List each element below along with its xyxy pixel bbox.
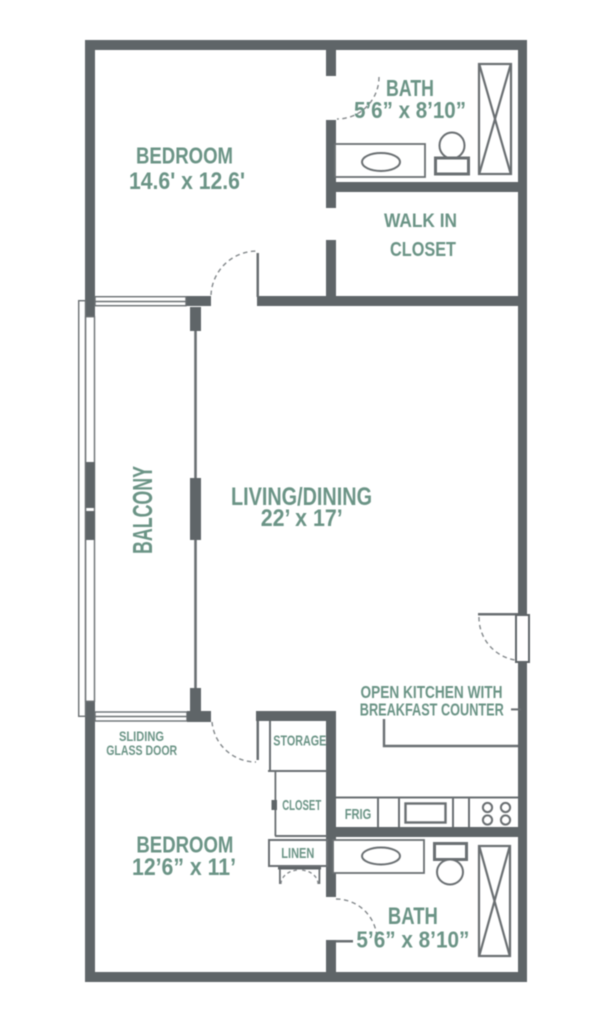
svg-text:BREAKFAST COUNTER: BREAKFAST COUNTER (360, 700, 504, 720)
svg-text:12’6” x 11’: 12’6” x 11’ (132, 854, 236, 881)
svg-text:GLASS DOOR: GLASS DOOR (106, 742, 177, 758)
svg-text:14.6' x 12.6': 14.6' x 12.6' (129, 168, 245, 195)
svg-text:STORAGE: STORAGE (273, 733, 326, 750)
svg-text:LINEN: LINEN (281, 845, 314, 862)
svg-text:CLOSET: CLOSET (390, 239, 456, 261)
svg-text:BEDROOM: BEDROOM (136, 143, 233, 169)
svg-text:FRIG: FRIG (345, 806, 372, 823)
svg-text:WALK IN: WALK IN (384, 210, 457, 232)
svg-text:5’6” x 8’10”: 5’6” x 8’10” (354, 97, 466, 123)
svg-text:22’ x 17’: 22’ x 17’ (261, 505, 343, 532)
svg-text:5’6” x 8’10”: 5’6” x 8’10” (356, 927, 469, 953)
svg-text:CLOSET: CLOSET (282, 797, 321, 814)
svg-text:BALCONY: BALCONY (127, 466, 158, 554)
